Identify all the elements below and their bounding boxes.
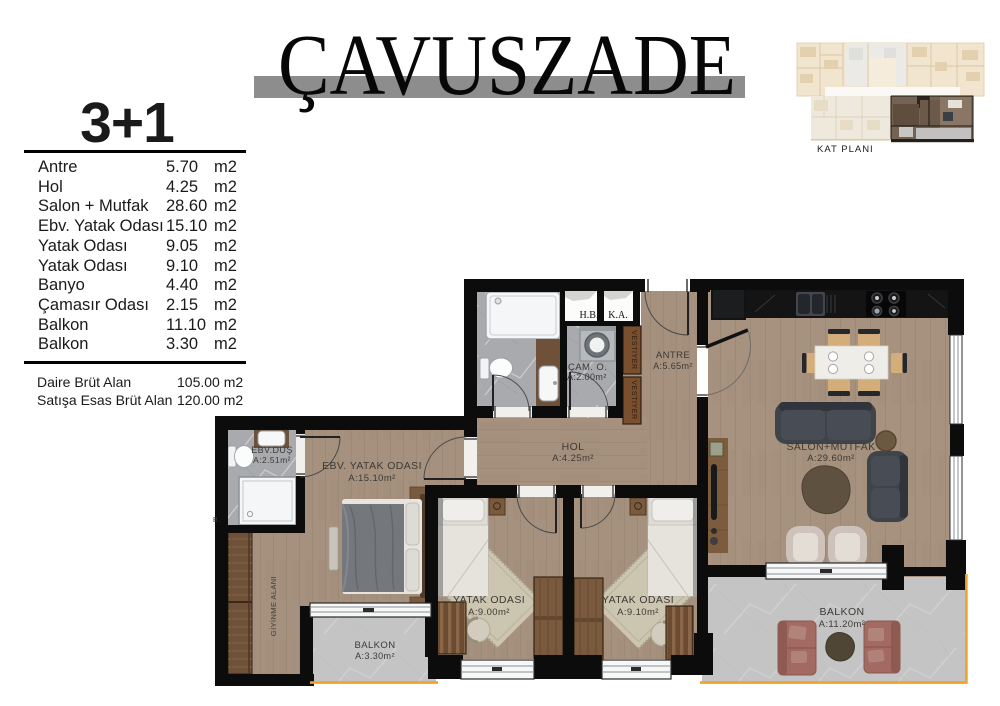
svg-text:A:9.10m²: A:9.10m² [617, 607, 659, 618]
svg-text:H.B.: H.B. [580, 310, 599, 321]
svg-text:A:4.25m²: A:4.25m² [552, 453, 594, 464]
svg-text:VESTIYER: VESTIYER [630, 380, 637, 419]
svg-text:SALON+MUTFAK: SALON+MUTFAK [786, 441, 875, 453]
svg-text:A:5.65m²: A:5.65m² [653, 361, 693, 371]
svg-text:A:3.30m²: A:3.30m² [355, 651, 395, 661]
svg-text:A:9.00m²: A:9.00m² [468, 607, 510, 618]
svg-text:VESTIYER: VESTIYER [630, 330, 637, 369]
svg-text:HOL: HOL [562, 441, 585, 453]
svg-text:EBV.DUŞ: EBV.DUŞ [251, 445, 293, 455]
svg-text:ANTRE: ANTRE [656, 350, 690, 361]
svg-text:EBV. YATAK ODASI: EBV. YATAK ODASI [322, 460, 422, 472]
svg-text:YATAK ODASI: YATAK ODASI [602, 594, 674, 606]
svg-text:A:11.20m²: A:11.20m² [819, 619, 866, 630]
svg-text:BALKON: BALKON [355, 640, 396, 651]
svg-text:A:15.10m²: A:15.10m² [348, 473, 395, 484]
svg-text:BALKON: BALKON [820, 606, 865, 618]
svg-text:A:2.51m²: A:2.51m² [253, 455, 291, 465]
svg-text:YATAK ODASI: YATAK ODASI [453, 594, 525, 606]
svg-text:B.: B. [213, 517, 220, 524]
svg-text:A:29.60m²: A:29.60m² [807, 453, 854, 464]
svg-text:KAT PLANI: KAT PLANI [817, 144, 874, 155]
svg-text:A:2.00m²: A:2.00m² [567, 372, 607, 382]
svg-text:ÇAVUSZADE: ÇAVUSZADE [278, 16, 736, 113]
svg-text:GİYİNME ALANI: GİYİNME ALANI [269, 576, 278, 636]
svg-text:K.A.: K.A. [608, 310, 627, 321]
